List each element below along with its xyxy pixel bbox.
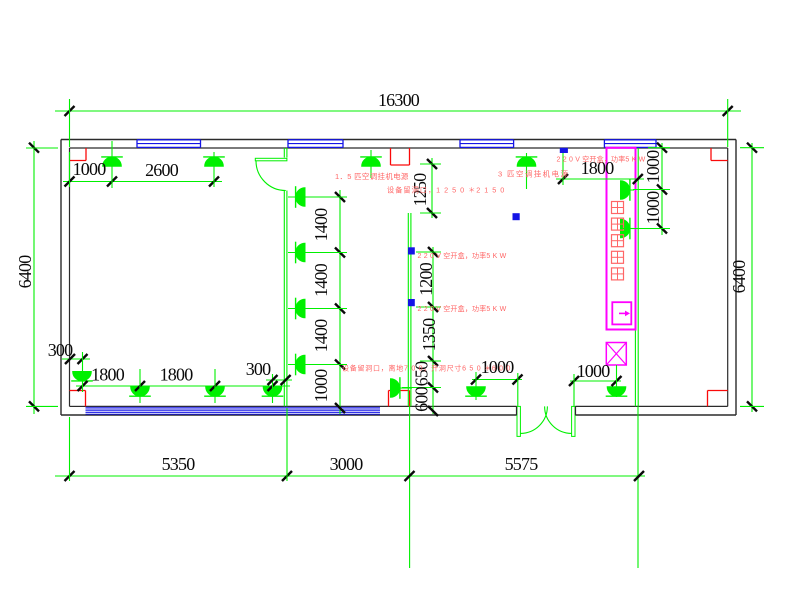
svg-text:300: 300 — [48, 340, 73, 360]
svg-text:1800: 1800 — [160, 365, 194, 385]
svg-text:1000: 1000 — [577, 361, 611, 381]
svg-text:1200: 1200 — [416, 262, 436, 296]
svg-text:3 匹空调挂机电源: 3 匹空调挂机电源 — [498, 169, 569, 179]
svg-text:5350: 5350 — [162, 454, 196, 474]
svg-text:1000: 1000 — [643, 191, 663, 225]
svg-text:1．5 匹空调挂机电源: 1．5 匹空调挂机电源 — [335, 171, 409, 181]
svg-text:1350: 1350 — [419, 318, 439, 352]
svg-text:1000: 1000 — [643, 150, 663, 184]
svg-text:2 2 0 V 空开盒，功率5 K W: 2 2 0 V 空开盒，功率5 K W — [418, 304, 507, 313]
svg-text:1800: 1800 — [91, 365, 125, 385]
svg-text:3000: 3000 — [330, 454, 364, 474]
svg-text:2 2 0 V 空开盒，功率5 K W: 2 2 0 V 空开盒，功率5 K W — [418, 251, 507, 260]
svg-text:300: 300 — [246, 359, 271, 379]
svg-text:2 2 0 V 空开盒，功率5 K W: 2 2 0 V 空开盒，功率5 K W — [557, 155, 646, 164]
svg-text:1000: 1000 — [73, 159, 107, 179]
svg-text:2600: 2600 — [145, 160, 179, 180]
svg-text:6400: 6400 — [15, 255, 35, 289]
svg-text:设备留洞口，1 2 5 0 ＊2 1 5 0: 设备留洞口，1 2 5 0 ＊2 1 5 0 — [387, 186, 505, 195]
svg-text:1400: 1400 — [311, 263, 331, 297]
svg-text:16300: 16300 — [378, 90, 420, 110]
svg-text:600: 600 — [412, 386, 432, 411]
svg-text:1000: 1000 — [311, 369, 331, 403]
svg-text:1400: 1400 — [311, 208, 331, 242]
svg-text:5575: 5575 — [505, 454, 539, 474]
svg-text:设备留洞口，离地7 0 0，开洞尺寸6 5 0 ＊6 0 0: 设备留洞口，离地7 0 0，开洞尺寸6 5 0 ＊6 0 0 — [342, 364, 511, 373]
svg-text:6400: 6400 — [729, 260, 749, 294]
svg-text:1400: 1400 — [311, 319, 331, 353]
